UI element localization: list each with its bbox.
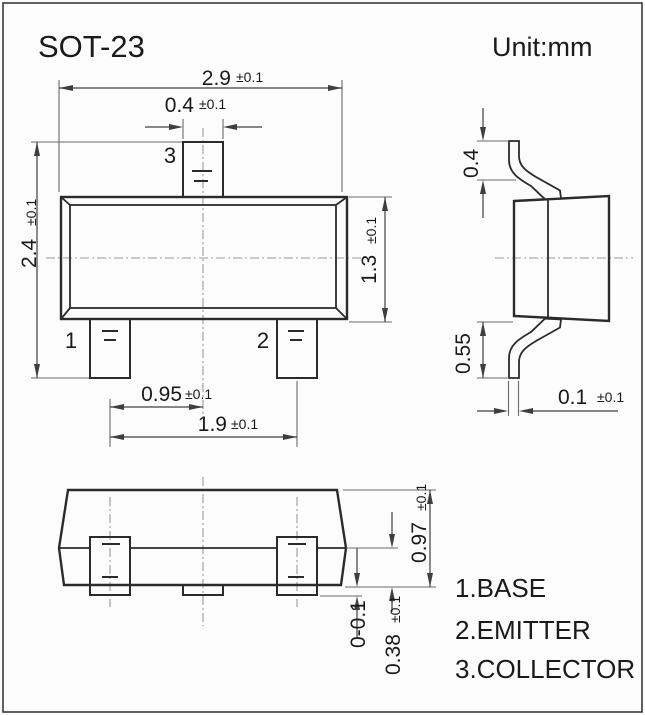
pin3-number-label: 3 [164,143,176,168]
drawing-canvas: SOT-23 Unit:mm 2.9 ±0.1 0.4 ±0.1 2.4 ±0.… [0,0,645,715]
body-height-tolerance: ±0.1 [363,217,379,244]
standoff-tolerance: ±0.1 [413,484,429,511]
legend-base: 1.BASE [455,573,546,603]
lead-foot-value: 0.55 [452,333,475,374]
page-border [3,3,642,712]
package-title: SOT-23 [38,29,145,64]
pin-span-tolerance: ±0.1 [231,416,258,432]
pin-pitch-tolerance: ±0.1 [185,386,212,402]
lead-thickness-value: 0.1 [558,386,587,409]
shoulder-tolerance: ±0.1 [387,596,403,623]
foot-protrusion-value: 0-0.1 [347,600,370,648]
overall-height-value: 2.4 [18,238,41,268]
lead-width-tolerance: ±0.1 [199,96,226,112]
sot23-package-drawing: SOT-23 Unit:mm 2.9 ±0.1 0.4 ±0.1 2.4 ±0.… [0,0,645,715]
body-width-value: 2.9 [202,67,231,90]
pin2-number-label: 2 [257,328,269,353]
pin1-number-label: 1 [65,328,77,353]
lead-width-value: 0.4 [165,94,195,117]
unit-label: Unit:mm [492,32,593,62]
standoff-value: 0.97 [408,522,431,563]
pin-span-value: 1.9 [198,413,227,436]
body-height-value: 1.3 [358,255,381,284]
legend-collector: 3.COLLECTOR [455,654,635,684]
legend-emitter: 2.EMITTER [455,615,591,645]
overall-height-tolerance: ±0.1 [23,199,39,226]
lead-top-value: 0.4 [460,148,483,178]
pin-pitch-value: 0.95 [141,383,182,406]
lead-thickness-tolerance: ±0.1 [597,389,624,405]
body-width-tolerance: ±0.1 [236,69,263,85]
shoulder-value: 0.38 [382,634,405,675]
